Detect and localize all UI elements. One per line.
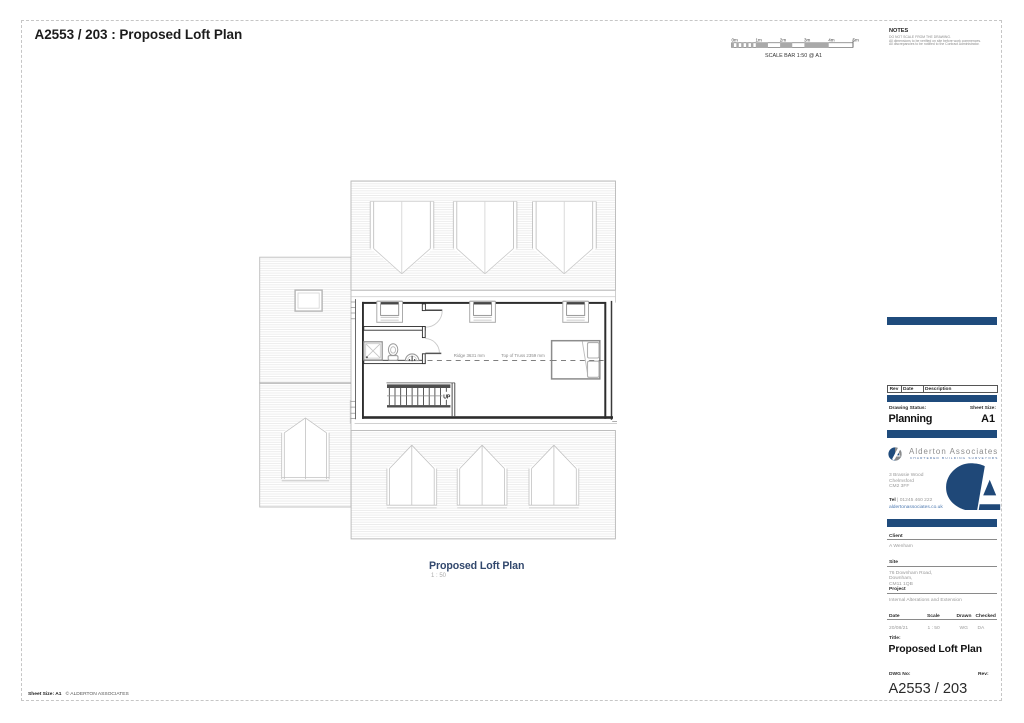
svg-text:4m: 4m: [828, 37, 835, 42]
svg-text:Top of Truss 2359 mm: Top of Truss 2359 mm: [501, 353, 545, 358]
svg-text:2m: 2m: [780, 37, 787, 42]
svg-text:Ridge 3631 mm: Ridge 3631 mm: [454, 353, 485, 358]
svg-text:0m: 0m: [732, 37, 739, 42]
svg-text:5m: 5m: [853, 37, 860, 42]
svg-text:3m: 3m: [804, 37, 811, 42]
svg-text:1m: 1m: [756, 37, 763, 42]
svg-text:UP: UP: [443, 394, 451, 400]
svg-text:SCALE BAR 1:50 @ A1: SCALE BAR 1:50 @ A1: [765, 53, 822, 59]
